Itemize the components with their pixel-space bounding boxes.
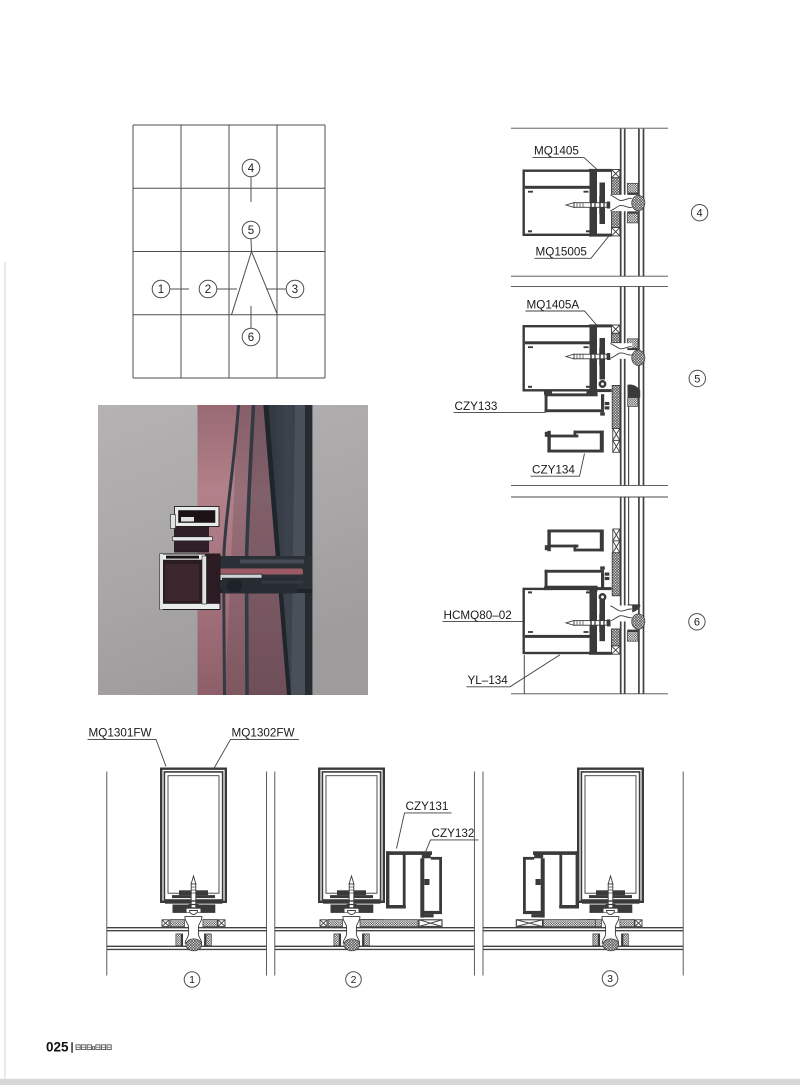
svg-text:CZY131: CZY131 xyxy=(406,800,449,813)
svg-text:MQ1405: MQ1405 xyxy=(534,145,579,158)
svg-text:6: 6 xyxy=(248,332,254,344)
svg-text:4: 4 xyxy=(697,208,703,220)
svg-text:5: 5 xyxy=(248,225,254,237)
svg-text:2: 2 xyxy=(351,974,357,986)
svg-text:MQ1302FW: MQ1302FW xyxy=(232,727,295,740)
svg-text:4: 4 xyxy=(248,163,255,175)
svg-text:CZY133: CZY133 xyxy=(455,400,498,413)
svg-text:CZY134: CZY134 xyxy=(532,464,575,477)
svg-text:3: 3 xyxy=(607,973,613,985)
svg-text:YL–134: YL–134 xyxy=(468,674,509,687)
svg-text:1: 1 xyxy=(189,974,195,986)
svg-text:CZY132: CZY132 xyxy=(432,827,475,840)
svg-text:3: 3 xyxy=(292,284,298,296)
svg-text:HCMQ80–02: HCMQ80–02 xyxy=(444,609,512,622)
svg-text:2: 2 xyxy=(205,284,211,296)
svg-text:025: 025 xyxy=(46,1040,69,1055)
svg-text:6: 6 xyxy=(694,617,700,629)
svg-text:5: 5 xyxy=(694,373,700,385)
svg-text:MQ1301FW: MQ1301FW xyxy=(89,727,152,740)
svg-text:MQ1405A: MQ1405A xyxy=(527,299,580,312)
svg-text:MQ15005: MQ15005 xyxy=(536,246,588,259)
svg-text:1: 1 xyxy=(158,284,164,296)
